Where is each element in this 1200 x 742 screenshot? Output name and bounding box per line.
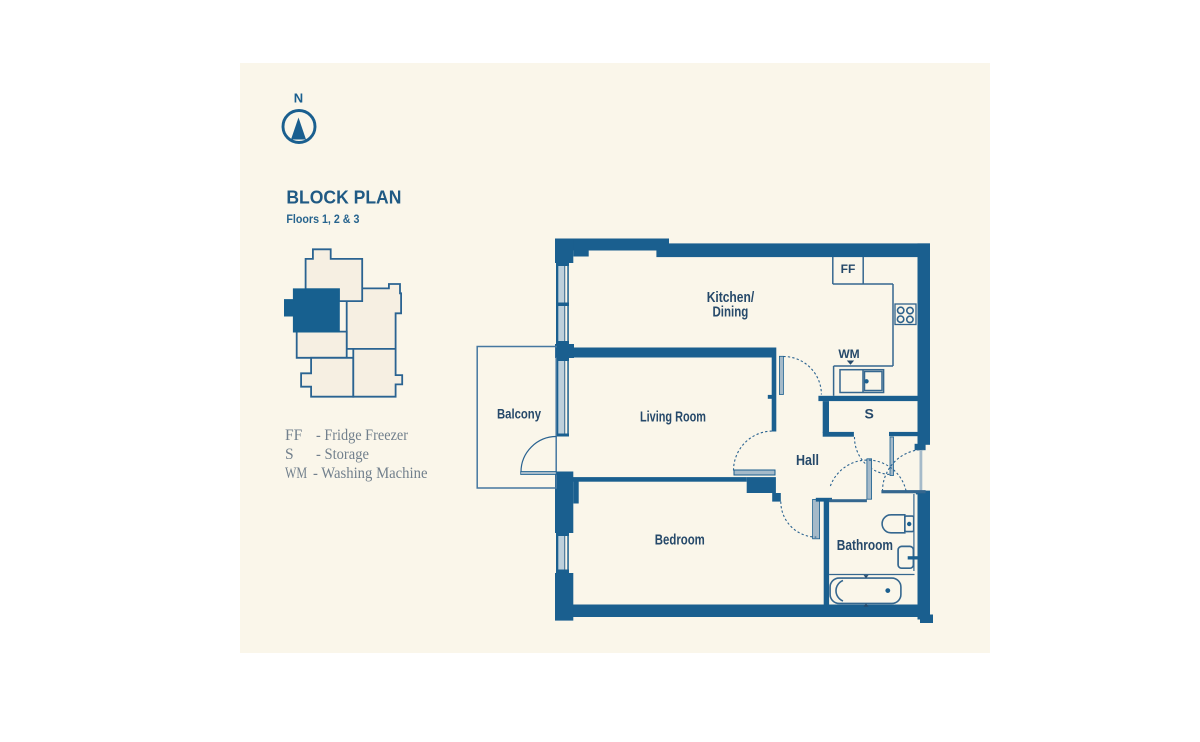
svg-text:Bathroom: Bathroom bbox=[837, 538, 893, 554]
svg-text:Hall: Hall bbox=[796, 453, 819, 469]
svg-text:WM: WM bbox=[838, 347, 859, 361]
svg-text:FF: FF bbox=[285, 427, 303, 444]
svg-text:Bedroom: Bedroom bbox=[655, 533, 705, 549]
svg-text:Floors 1, 2 & 3: Floors 1, 2 & 3 bbox=[286, 212, 359, 226]
svg-text:Living Room: Living Room bbox=[640, 410, 706, 426]
svg-text:BLOCK PLAN: BLOCK PLAN bbox=[286, 187, 401, 208]
svg-text:S: S bbox=[285, 446, 294, 463]
svg-text:- Storage: - Storage bbox=[316, 446, 369, 463]
svg-text:WM: WM bbox=[285, 465, 307, 482]
svg-text:S: S bbox=[865, 406, 874, 422]
svg-text:- Washing Machine: - Washing Machine bbox=[313, 465, 428, 482]
svg-text:N: N bbox=[294, 91, 303, 106]
svg-text:- Fridge Freezer: - Fridge Freezer bbox=[316, 427, 409, 444]
svg-text:Dining: Dining bbox=[713, 305, 749, 321]
svg-text:FF: FF bbox=[841, 262, 856, 276]
svg-text:Balcony: Balcony bbox=[497, 406, 541, 422]
